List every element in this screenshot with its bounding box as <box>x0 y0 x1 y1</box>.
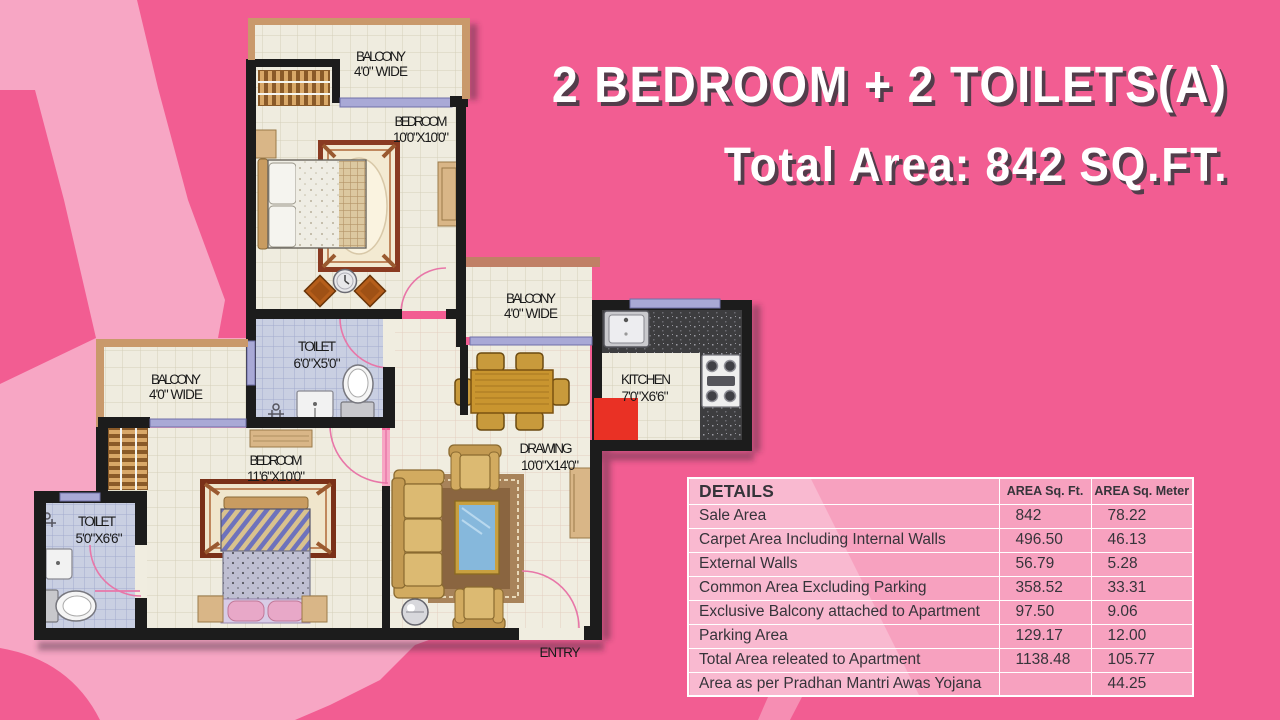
svg-text:ENTRY: ENTRY <box>540 645 581 660</box>
svg-text:BEDROOM: BEDROOM <box>250 453 303 468</box>
svg-text:TOILET: TOILET <box>78 514 116 529</box>
svg-text:10'0"X10'0": 10'0"X10'0" <box>393 130 449 145</box>
svg-text:6'0"X5'0": 6'0"X5'0" <box>294 356 341 371</box>
svg-text:10'0"X14'0": 10'0"X14'0" <box>521 458 579 473</box>
svg-text:4'0" WIDE: 4'0" WIDE <box>504 306 558 321</box>
svg-text:7'0"X6'6": 7'0"X6'6" <box>622 389 669 404</box>
svg-text:KITCHEN: KITCHEN <box>621 372 671 387</box>
svg-text:BALCONY: BALCONY <box>356 49 406 64</box>
svg-text:TOILET: TOILET <box>298 339 336 354</box>
svg-text:BALCONY: BALCONY <box>151 372 201 387</box>
svg-text:4'0" WIDE: 4'0" WIDE <box>149 387 203 402</box>
svg-text:BEDROOM: BEDROOM <box>395 114 448 129</box>
svg-text:11'6"X10'0": 11'6"X10'0" <box>247 469 305 484</box>
svg-text:DRAWING: DRAWING <box>520 441 573 456</box>
svg-text:BALCONY: BALCONY <box>506 291 556 306</box>
svg-text:4'0" WIDE: 4'0" WIDE <box>354 64 408 79</box>
svg-text:5'0"X6'6": 5'0"X6'6" <box>76 531 123 546</box>
